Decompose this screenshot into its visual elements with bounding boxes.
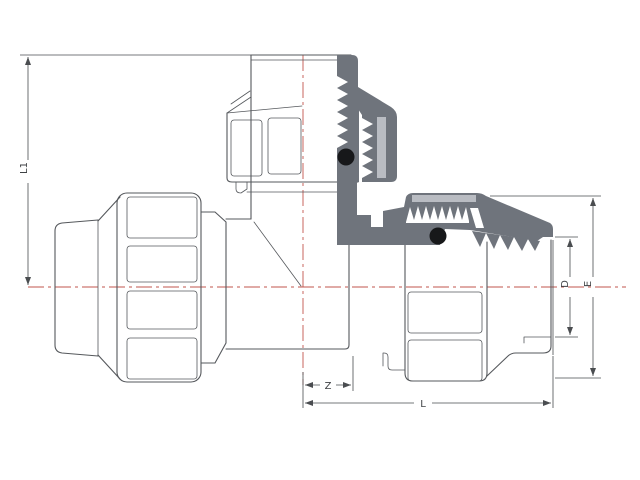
technical-drawing-canvas: L1 Z L D E [0, 0, 640, 480]
dim-label-l: L [420, 399, 426, 410]
left-nut-window-4 [127, 338, 197, 379]
branch-nut-top-edge [227, 106, 302, 113]
right-nut-body [405, 242, 487, 381]
tee-body [226, 219, 349, 349]
left-tail-outline [55, 220, 98, 356]
branch-nut-window-1 [231, 120, 262, 176]
right-nut-highlight [412, 195, 476, 202]
right-compression-nut [383, 240, 551, 381]
left-nut-window-2 [127, 246, 197, 282]
tee-fitting-drawing: L1 Z L D E [0, 0, 640, 480]
o-ring-seal-branch [338, 149, 355, 166]
branch-nut-window-2 [268, 118, 301, 174]
dimension-z: Z [303, 356, 353, 408]
left-nut-window-3 [127, 291, 197, 329]
left-compression-nut [55, 193, 226, 382]
right-collar-step [383, 353, 405, 370]
right-nut-window-2 [408, 340, 482, 381]
right-mouth-lip [524, 337, 551, 343]
right-tail-outline [487, 240, 551, 376]
branch-nut-highlight [377, 117, 386, 178]
branch-nut-skirt-tab [236, 182, 247, 193]
cross-section [337, 55, 553, 251]
dimension-l: L [305, 240, 553, 410]
branch-flare [227, 91, 251, 113]
dim-label-e: E [583, 281, 594, 287]
dimension-l1: L1 [19, 55, 251, 285]
right-nut-window-1 [408, 292, 482, 333]
left-nut-body [117, 193, 201, 382]
dim-label-d: D [560, 280, 571, 288]
branch-transition-cone [254, 222, 301, 286]
left-nut-window-1 [127, 197, 197, 238]
left-collar [201, 212, 226, 363]
o-ring-seal-right [430, 228, 447, 245]
dim-label-z: Z [325, 381, 332, 392]
body-bottom-and-mouth [226, 245, 349, 349]
dim-label-l1: L1 [19, 162, 30, 174]
